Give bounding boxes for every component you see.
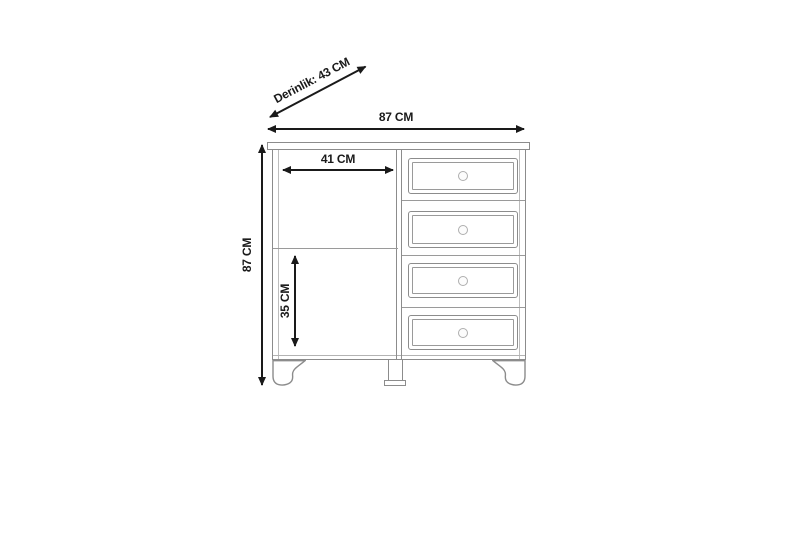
drawer-panel xyxy=(412,319,514,346)
overall-height-dimension-line xyxy=(261,145,263,385)
drawer-front-3 xyxy=(408,263,518,298)
cabriole-leg-left xyxy=(272,360,306,386)
overall-width-label: 87 CM xyxy=(268,110,524,124)
drawer-panel xyxy=(412,267,514,294)
arrowhead-icon xyxy=(516,125,525,133)
arrowhead-icon xyxy=(282,166,291,174)
compartment-height-label: 35 CM xyxy=(278,284,292,318)
drawer-knob-icon xyxy=(458,171,468,181)
left-panel-inner-line xyxy=(278,150,279,359)
arrowhead-icon xyxy=(258,144,266,153)
drawer-panel xyxy=(412,215,514,244)
overall-height-label: 87 CM xyxy=(240,238,254,272)
bottom-panel-inner-line xyxy=(273,355,525,356)
arrowhead-icon xyxy=(291,255,299,264)
drawer-separator-line xyxy=(402,255,525,256)
drawer-separator-line xyxy=(402,200,525,201)
compartment-width-label: 41 CM xyxy=(283,152,393,166)
center-leg xyxy=(388,360,403,381)
center-divider-line xyxy=(396,150,397,359)
door-shelf-line xyxy=(273,248,398,249)
arrowhead-icon xyxy=(385,166,394,174)
center-leg-foot xyxy=(384,380,406,386)
drawer-knob-icon xyxy=(458,328,468,338)
drawer-front-1 xyxy=(408,158,518,194)
dimension-diagram: Derinlik: 43 CM 87 CM 87 CM xyxy=(0,0,800,533)
drawer-knob-icon xyxy=(458,225,468,235)
cabriole-leg-right xyxy=(492,360,526,386)
drawer-panel xyxy=(412,162,514,190)
depth-dimension-label: Derinlik: 43 CM xyxy=(261,49,363,112)
arrowhead-icon xyxy=(258,377,266,386)
drawer-knob-icon xyxy=(458,276,468,286)
arrowhead-icon xyxy=(267,125,276,133)
overall-width-dimension-line xyxy=(268,128,524,130)
arrowhead-icon xyxy=(291,338,299,347)
drawer-front-4 xyxy=(408,315,518,350)
arrowhead-icon xyxy=(357,63,369,74)
drawer-separator-line xyxy=(402,307,525,308)
compartment-width-dimension-line xyxy=(283,169,393,171)
compartment-height-dimension-line xyxy=(294,256,296,346)
drawer-front-2 xyxy=(408,211,518,248)
